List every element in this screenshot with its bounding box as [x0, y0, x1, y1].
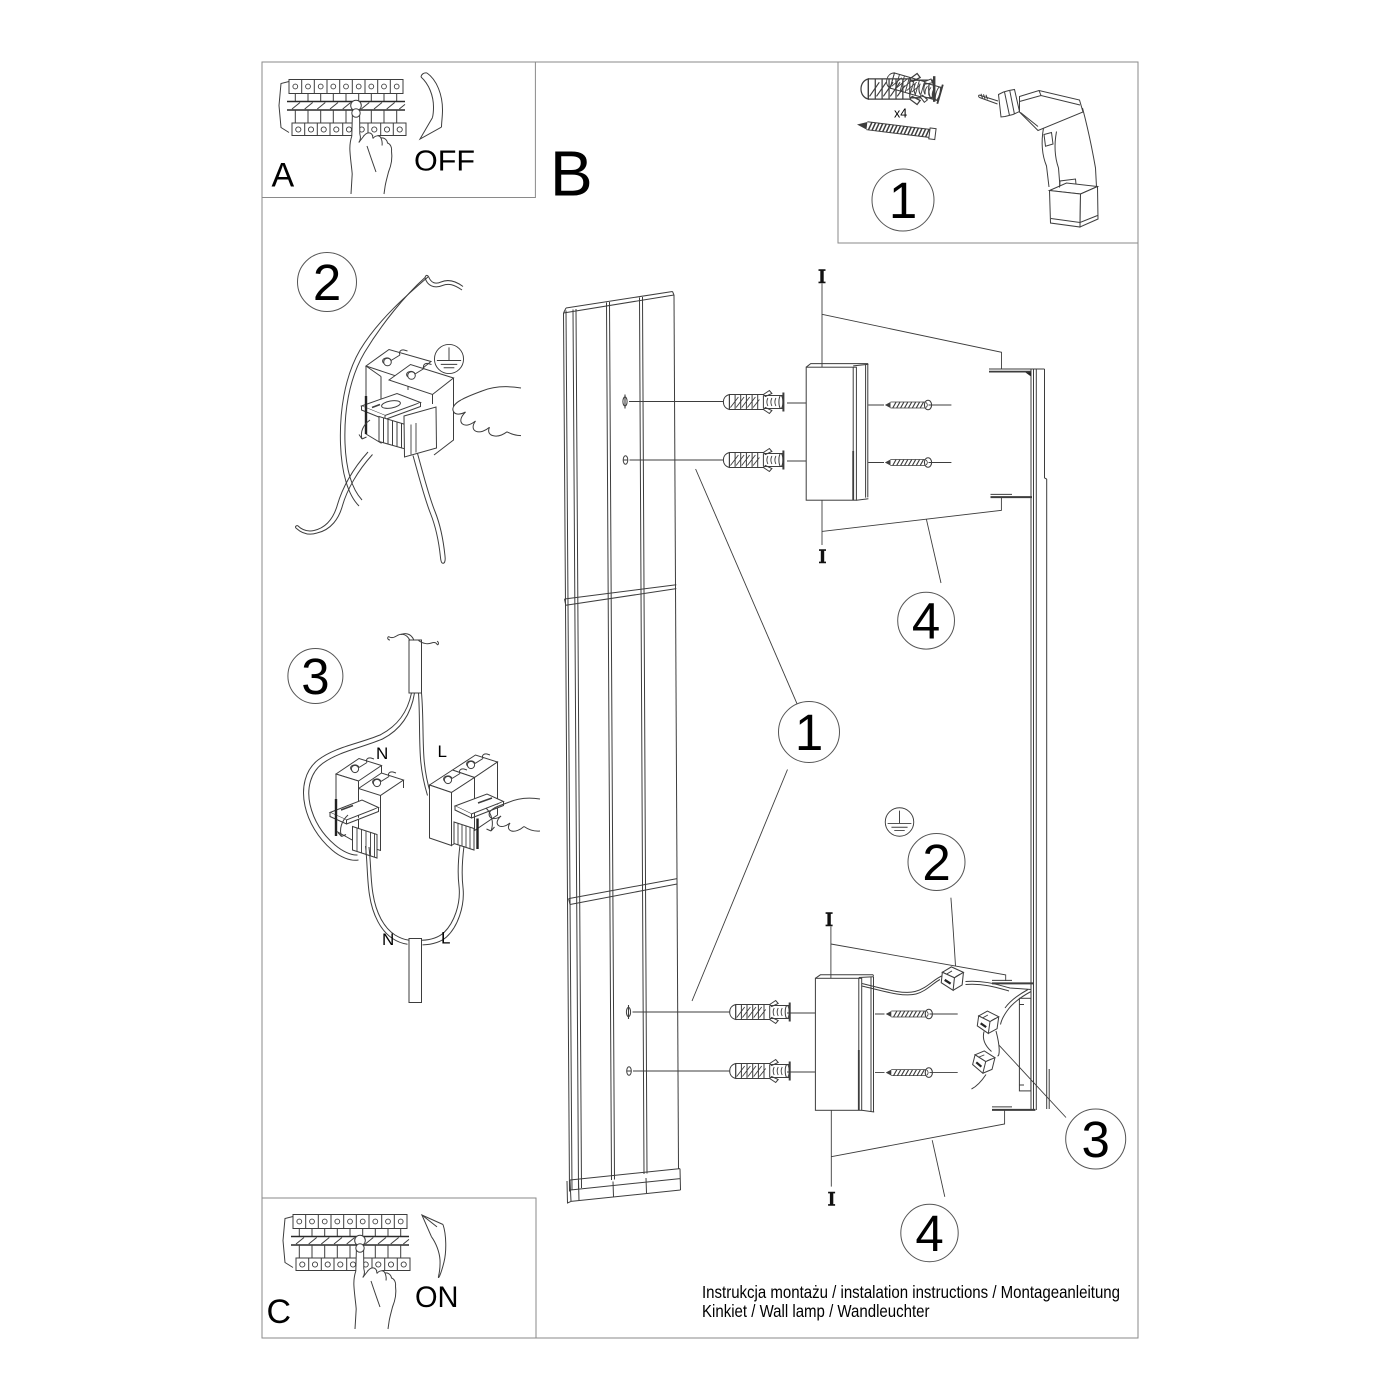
- svg-text:1: 1: [795, 704, 823, 761]
- svg-text:4: 4: [912, 593, 940, 650]
- svg-text:N: N: [376, 744, 388, 763]
- svg-text:x4: x4: [894, 107, 907, 121]
- svg-text:C: C: [267, 1293, 292, 1331]
- svg-text:L: L: [438, 742, 447, 761]
- svg-text:3: 3: [1082, 1111, 1110, 1168]
- svg-text:4: 4: [915, 1205, 943, 1262]
- svg-text:2: 2: [922, 834, 950, 891]
- svg-text:A: A: [272, 157, 295, 195]
- svg-text:ON: ON: [415, 1281, 459, 1314]
- svg-text:Kinkiet / Wall lamp / Wandleuc: Kinkiet / Wall lamp / Wandleuchter: [702, 1301, 930, 1321]
- svg-text:1: 1: [889, 172, 917, 229]
- svg-text:N: N: [382, 930, 394, 949]
- svg-text:2: 2: [313, 254, 341, 311]
- svg-text:3: 3: [301, 648, 329, 705]
- svg-text:L: L: [441, 929, 450, 948]
- svg-text:OFF: OFF: [414, 146, 475, 178]
- svg-text:B: B: [550, 138, 593, 210]
- svg-text:Instrukcja montażu / instalati: Instrukcja montażu / instalation instruc…: [702, 1282, 1120, 1302]
